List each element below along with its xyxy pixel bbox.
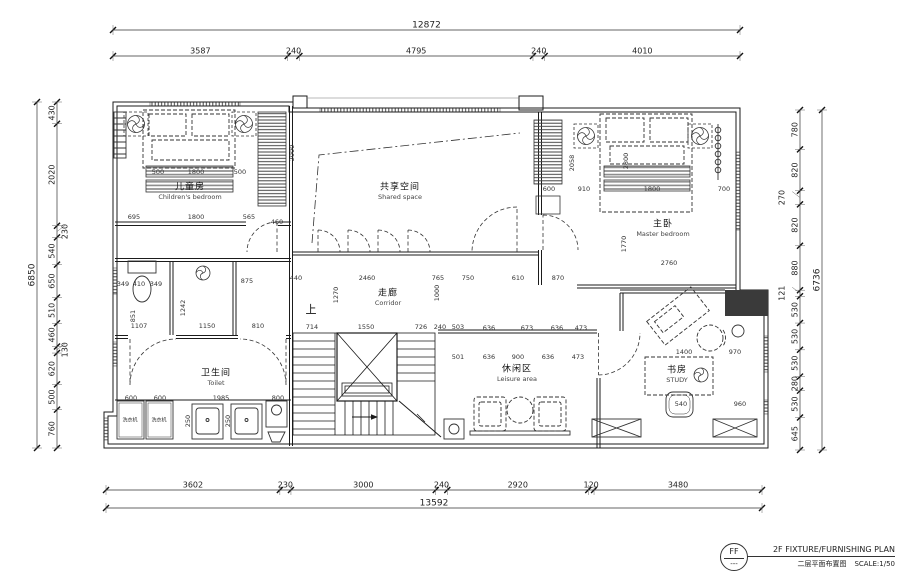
- floor-plan-drawing: 1287235872404795240401036022303000240292…: [0, 0, 900, 585]
- stair-up-label: 上: [306, 301, 317, 317]
- chain-dimension: 460: [48, 327, 57, 342]
- interior-dimension: 810: [252, 322, 264, 330]
- chain-dimension: 3602: [183, 481, 203, 490]
- chain-dimension: 3587: [190, 47, 210, 56]
- room-label-en: Leisure area: [497, 375, 537, 383]
- interior-dimension: 2000: [288, 145, 296, 162]
- chain-dimension: 121: [778, 286, 787, 301]
- interior-dimension: 473: [575, 324, 587, 332]
- desk-chair-small: [732, 325, 744, 337]
- chain-dimension: 12872: [412, 21, 441, 31]
- interior-dimension: 875: [241, 277, 253, 285]
- interior-dimension: 440: [290, 274, 302, 282]
- chain-dimension: 230: [61, 224, 70, 239]
- chain-dimension: 500: [48, 389, 57, 404]
- interior-dimension: 610: [512, 274, 524, 282]
- interior-dimension: 600: [154, 394, 166, 402]
- washing-machine-label: 洗衣机: [151, 417, 166, 424]
- interior-dimension: 600: [125, 394, 137, 402]
- interior-dimension: 1800: [188, 213, 205, 221]
- chain-dimension: 240: [286, 47, 301, 56]
- interior-dimension: 410: [133, 280, 145, 288]
- chain-dimension: 130: [61, 342, 70, 357]
- chain-dimension: 3000: [353, 481, 373, 490]
- chain-dimension: 530: [791, 329, 800, 344]
- scale-label: SCALE:1/50: [854, 560, 895, 568]
- room-label-en: Master bedroom: [636, 230, 689, 238]
- title-block: FF --- 2F FIXTURE/FURNISHING PLAN 二层平面布置…: [720, 539, 895, 573]
- interior-dimension: 500: [234, 168, 246, 176]
- interior-dimension: 695: [128, 213, 140, 221]
- room-label-en: Children's bedroom: [158, 193, 221, 201]
- chain-dimension: 6850: [28, 263, 38, 286]
- chain-dimension: 620: [48, 361, 57, 376]
- chain-dimension: 230: [278, 481, 293, 490]
- interior-dimension: 636: [483, 324, 495, 332]
- interior-dimension: 565: [243, 213, 255, 221]
- wc-tank: [128, 261, 156, 273]
- chain-dimension: 270: [778, 190, 787, 205]
- chain-dimension: 240: [531, 47, 546, 56]
- interior-dimension: 1270: [332, 287, 340, 304]
- interior-dimension: 765: [432, 274, 444, 282]
- interior-dimension: 1550: [358, 323, 375, 331]
- washing-machine-label: 洗衣机: [122, 417, 137, 424]
- room-label-cn: 共享空间: [380, 180, 420, 193]
- interior-dimension: 970: [729, 348, 741, 356]
- chain-dimension: 820: [791, 217, 800, 232]
- room-label-cn: 卫生间: [201, 366, 231, 379]
- chain-dimension: 4010: [632, 47, 652, 56]
- stamp-sub: ---: [721, 559, 747, 569]
- interior-dimension: 1800: [188, 168, 205, 176]
- interior-dimension: 1242: [179, 300, 187, 317]
- chain-dimension: 280: [791, 376, 800, 391]
- interior-dimension: 1107: [131, 322, 148, 330]
- interior-dimension: 349: [117, 280, 129, 288]
- room-label-cn: 儿童房: [175, 180, 205, 193]
- furniture-dashed: [143, 110, 726, 431]
- chain-dimension: 3480: [668, 481, 688, 490]
- chain-dimension: 645: [791, 426, 800, 441]
- interior-dimension: 726: [415, 323, 427, 331]
- interior-dimension: 1000: [433, 285, 441, 302]
- interior-dimension: 250: [184, 415, 192, 427]
- interior-dimension: 503: [452, 323, 464, 331]
- interior-dimension: 1800: [644, 185, 661, 193]
- interior-dimension: 636: [542, 353, 554, 361]
- chain-dimension: 530: [791, 302, 800, 317]
- plan-title-en: 2F FIXTURE/FURNISHING PLAN: [773, 545, 895, 554]
- interior-dimension: 460: [271, 218, 283, 226]
- wall-mass: [725, 290, 768, 316]
- shower-head-icon: [196, 266, 210, 280]
- interior-dimension: 636: [551, 324, 563, 332]
- chain-dimension: 820: [791, 162, 800, 177]
- chain-dimension: 650: [48, 273, 57, 288]
- room-label-cn: 主卧: [653, 217, 673, 230]
- interior-dimension: 500: [152, 168, 164, 176]
- chain-dimension: 780: [791, 122, 800, 137]
- interior-dimension: 1770: [620, 236, 628, 253]
- windows: [104, 102, 767, 440]
- stamp-code: FF: [724, 546, 744, 559]
- interior-dimension: 600: [543, 185, 555, 193]
- plan-title-cn: 二层平面布置图SCALE:1/50: [797, 559, 895, 569]
- tv-console: [470, 431, 570, 435]
- chain-dimension: 240: [434, 481, 449, 490]
- room-label-en: Toilet: [207, 379, 224, 387]
- interior-dimension: 240: [434, 323, 446, 331]
- chain-dimension: 120: [584, 481, 599, 490]
- chain-dimension: 13592: [420, 499, 449, 509]
- room-label-en: STUDY: [666, 376, 687, 384]
- chain-dimension: 4795: [406, 47, 426, 56]
- interior-dimension: 851: [129, 310, 137, 322]
- interior-dimension: 250: [224, 415, 232, 427]
- interior-dimension: 800: [272, 394, 284, 402]
- room-label-en: Shared space: [378, 193, 422, 201]
- floor-plan-canvas: 1287235872404795240401036022303000240292…: [0, 0, 900, 585]
- chain-dimension: 2020: [48, 165, 57, 185]
- chain-dimension: 880: [791, 260, 800, 275]
- room-label-cn: 书房: [667, 363, 687, 376]
- room-label-cn: 走廊: [378, 286, 398, 299]
- plan-stamp-icon: FF ---: [720, 543, 748, 571]
- interior-dimension: 2800: [622, 153, 630, 170]
- chain-dimension: 530: [791, 356, 800, 371]
- room-label-en: Corridor: [375, 299, 401, 307]
- interior-dimension: 750: [462, 274, 474, 282]
- chain-dimension: 540: [48, 243, 57, 258]
- interior-dimension: 540: [675, 400, 687, 408]
- chain-dimension: 530: [791, 396, 800, 411]
- interior-dimension: 2760: [661, 259, 678, 267]
- interior-dimension: 636: [483, 353, 495, 361]
- interior-dimension: 900: [512, 353, 524, 361]
- interior-dimension: 473: [572, 353, 584, 361]
- chain-dimension: 2920: [508, 481, 528, 490]
- interior-dimension: 2058: [568, 155, 576, 172]
- interior-dimension: 2460: [359, 274, 376, 282]
- interior-dimension: 501: [452, 353, 464, 361]
- chain-dimension: 760: [48, 421, 57, 436]
- interior-dimension: 960: [734, 400, 746, 408]
- chain-dimension: 6736: [813, 268, 823, 291]
- interior-dimension: 700: [718, 185, 730, 193]
- interior-dimension: 1985: [213, 394, 230, 402]
- interior-dimension: 870: [552, 274, 564, 282]
- interior-dimension: 1400: [676, 348, 693, 356]
- stair-core: [293, 333, 441, 437]
- interior-dimension: 349: [150, 280, 162, 288]
- room-label-cn: 休闲区: [502, 362, 532, 375]
- interior-dimension: 1150: [199, 322, 216, 330]
- interior-dimension: 673: [521, 324, 533, 332]
- interior-dimension: 714: [306, 323, 318, 331]
- chain-dimension: 510: [48, 303, 57, 318]
- interior-dimension: 910: [578, 185, 590, 193]
- chain-dimension: 430: [48, 105, 57, 120]
